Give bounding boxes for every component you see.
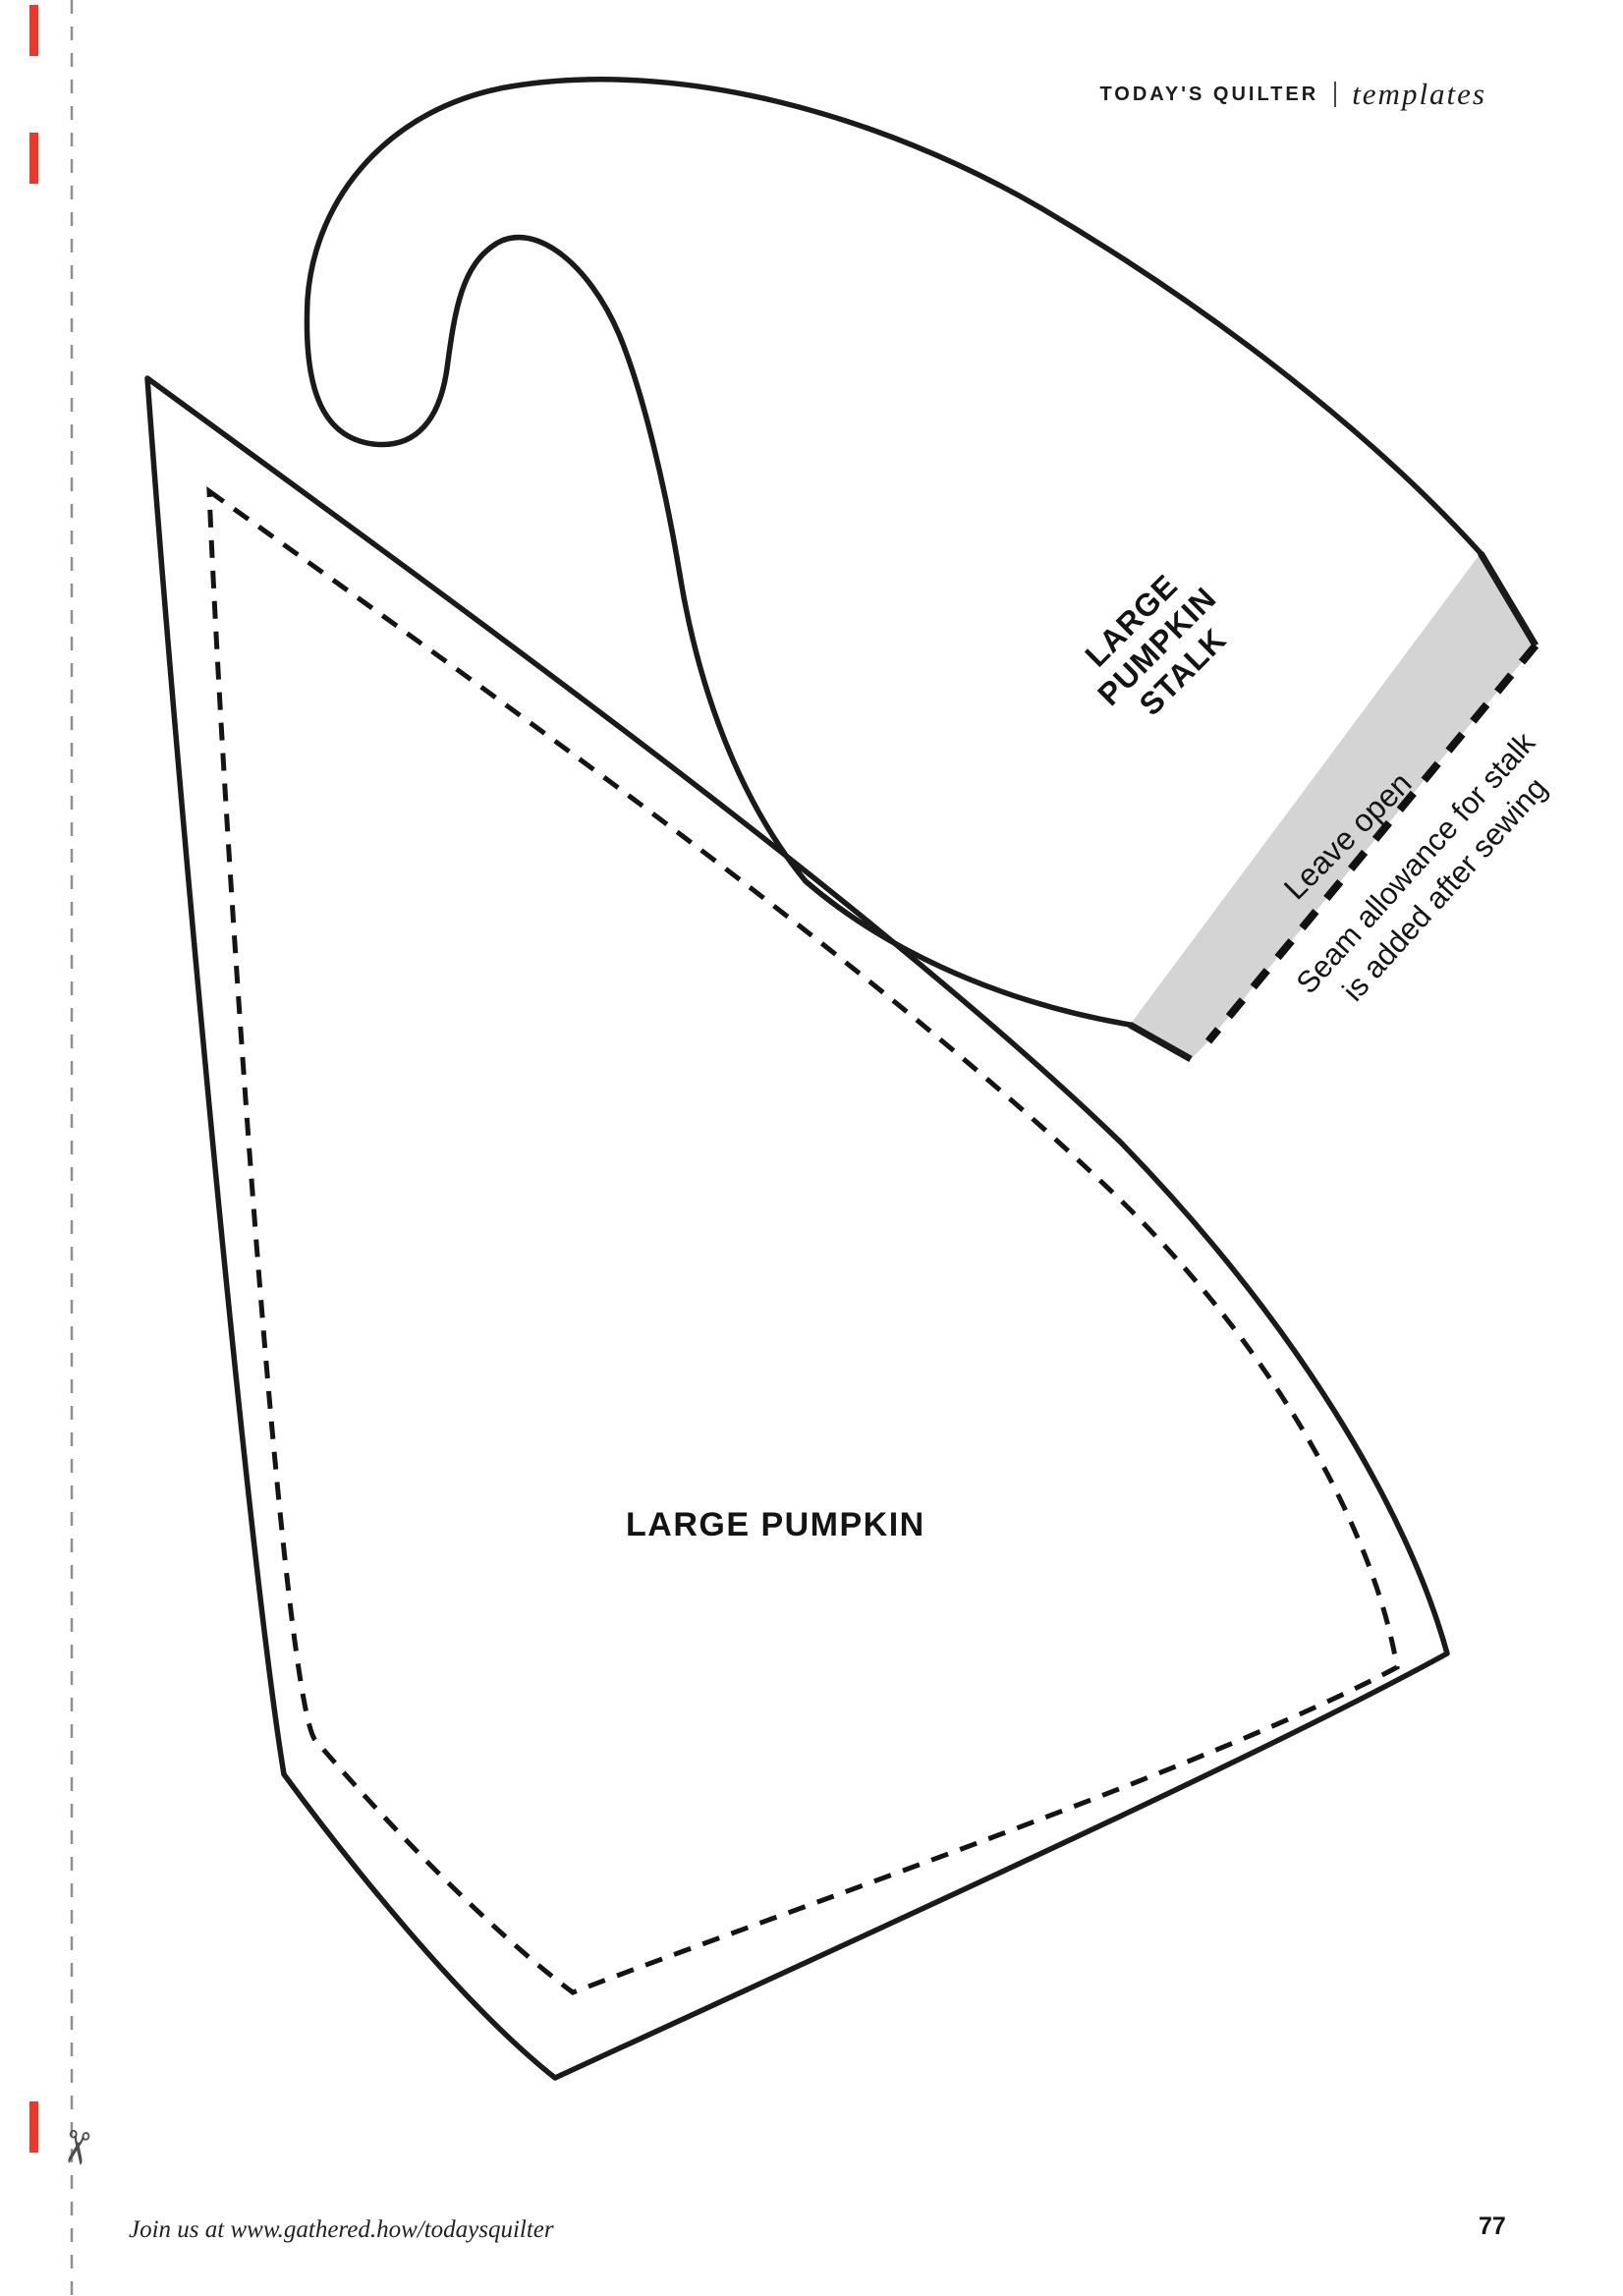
footer-join-link: Join us at www.gathered.how/todaysquilte… <box>129 2216 554 2244</box>
cut-mark <box>29 2101 38 2153</box>
pumpkin-label: LARGE PUMPKIN <box>626 1506 925 1544</box>
section-title: templates <box>1352 77 1486 112</box>
magazine-title: TODAY'S QUILTER <box>1099 84 1318 106</box>
cut-mark <box>29 133 38 184</box>
template-artwork <box>0 0 1623 2296</box>
page-number: 77 <box>1479 2212 1506 2241</box>
magazine-template-page: TODAY'S QUILTER templates LARGE PUMPKIN … <box>0 0 1623 2296</box>
header-divider <box>1334 82 1336 107</box>
page-header: TODAY'S QUILTER templates <box>1099 77 1486 112</box>
pumpkin-outline <box>147 378 1447 2078</box>
cut-mark <box>29 5 38 56</box>
scissors-icon: ✂ <box>45 2116 109 2180</box>
